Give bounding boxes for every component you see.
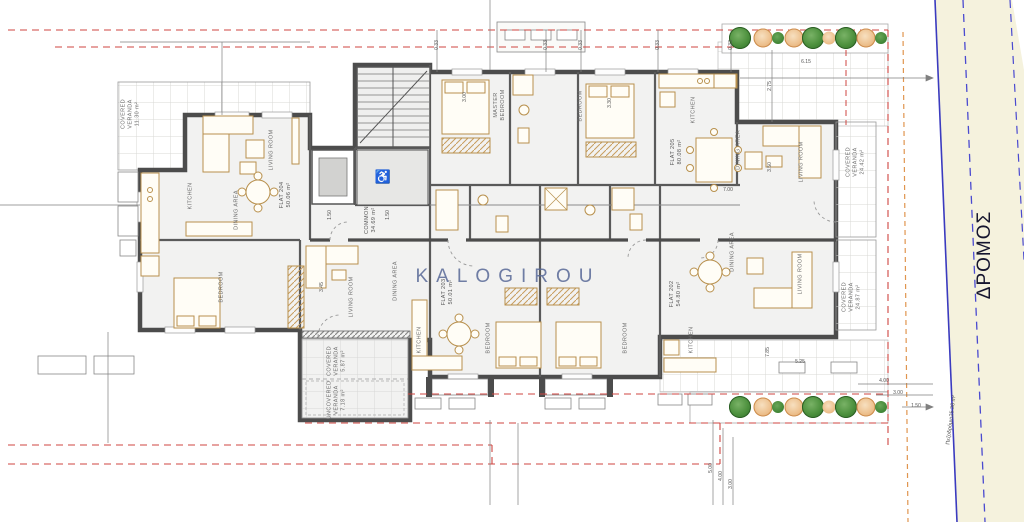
planter-band-bottom xyxy=(690,392,888,423)
floor-plan-canvas: 0.330.330.330.330.332.756.153.003.303.45… xyxy=(0,0,1024,522)
accessible-wc xyxy=(357,150,428,205)
wheelchair-icon: ♿ xyxy=(375,169,391,185)
watermark-text: KALOGIROU xyxy=(416,266,601,288)
veranda-205-area xyxy=(836,122,876,237)
road-name-label: ΔΡΟΜΟΣ xyxy=(974,211,996,300)
planter-band-top xyxy=(722,24,888,53)
elevator xyxy=(312,150,354,204)
garden-paving-top xyxy=(718,42,888,126)
veranda-203-area xyxy=(302,339,408,418)
staircase xyxy=(357,67,430,147)
floor-plan-drawing xyxy=(0,0,1024,522)
veranda-202-area xyxy=(836,240,876,330)
